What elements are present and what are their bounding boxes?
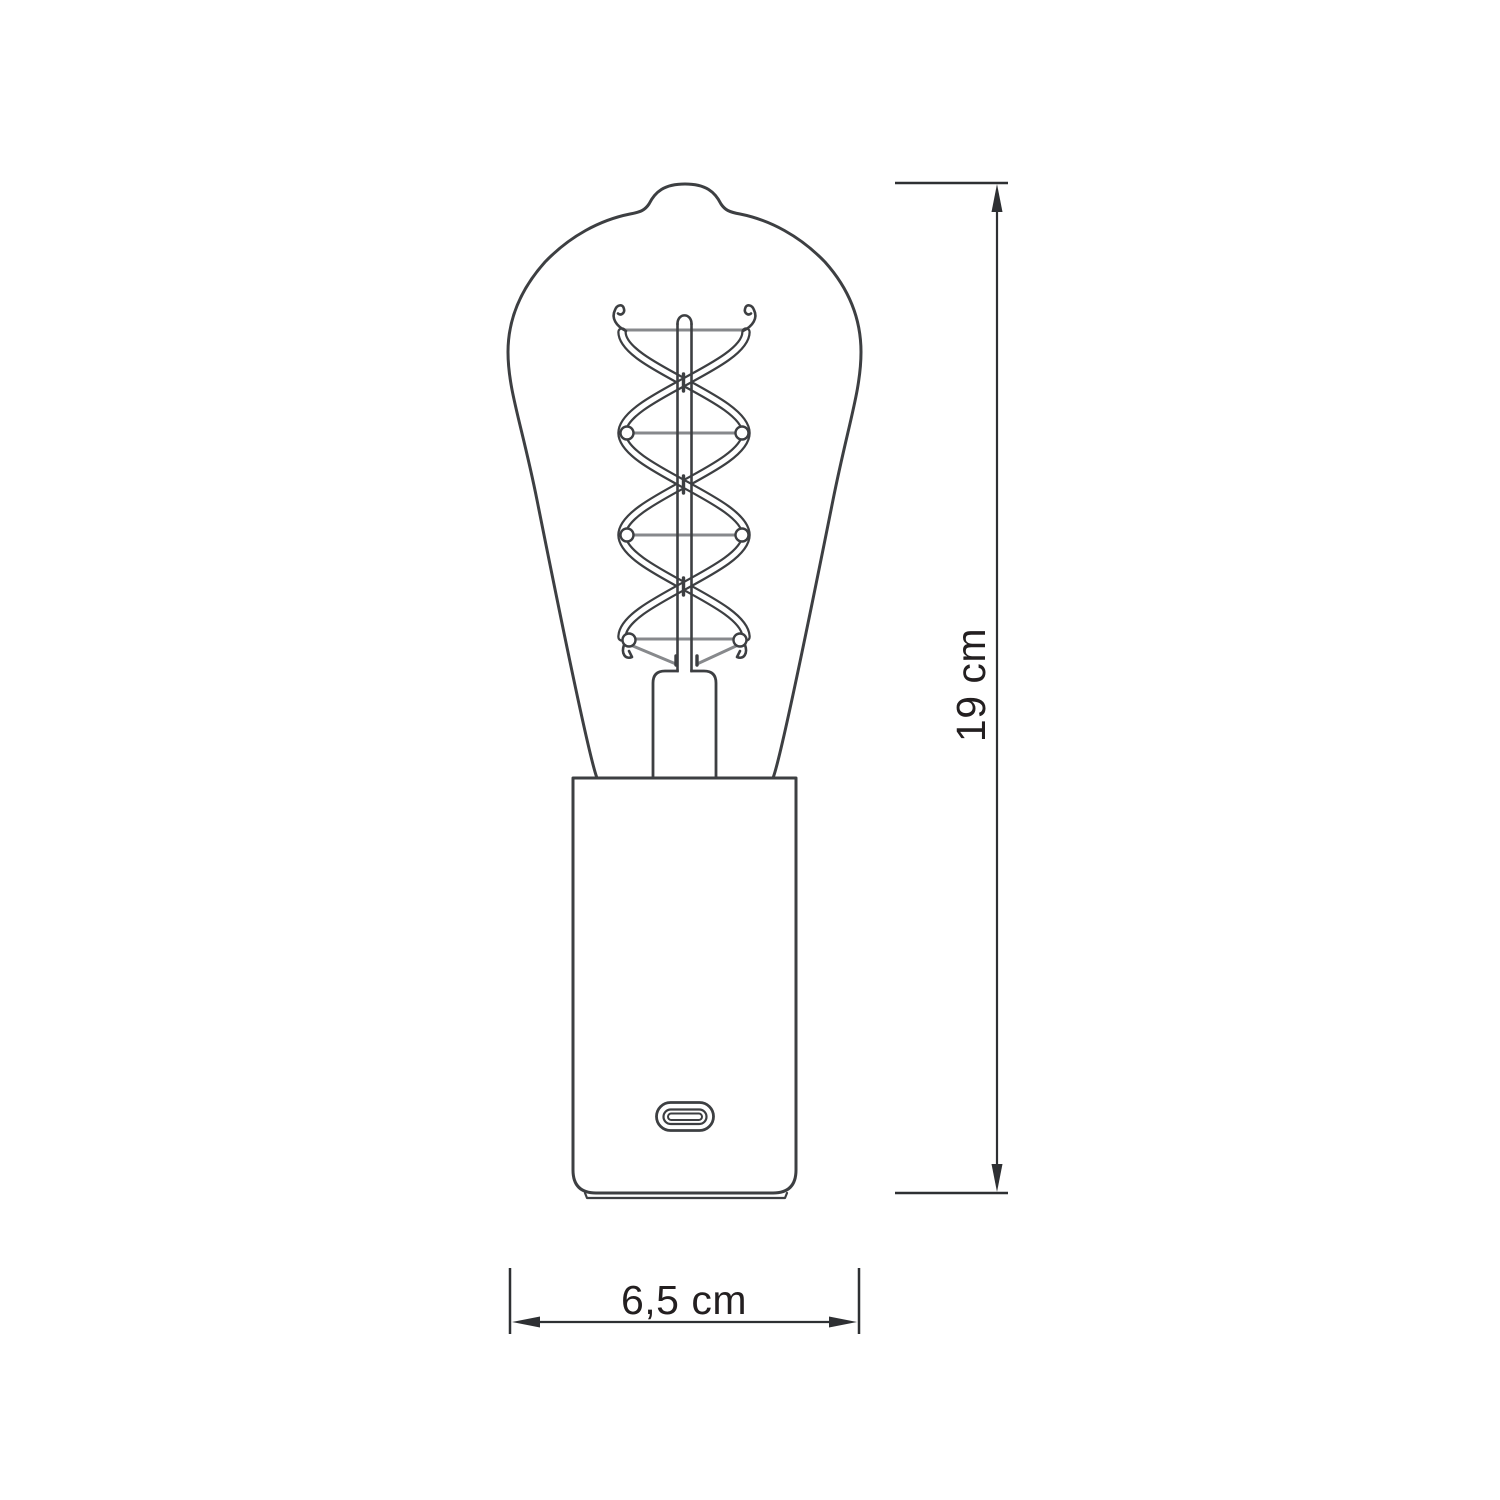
technical-drawing: 19 cm 6,5 cm [0, 0, 1500, 1500]
hook-top-left [614, 305, 626, 331]
stem-rod-cap [678, 315, 692, 324]
loop [621, 529, 634, 542]
arrow-left-icon [512, 1317, 540, 1328]
hook-top-right [743, 305, 755, 331]
loop [621, 427, 634, 440]
height-dimension-label: 19 cm [948, 628, 994, 742]
arrow-down-icon [992, 1164, 1003, 1192]
loop [736, 529, 749, 542]
lead-wire-left [633, 646, 676, 664]
arrow-up-icon [992, 184, 1003, 212]
width-dimension: 6,5 cm [510, 1268, 859, 1334]
filament-anchors [676, 374, 697, 665]
rod-stem-junction [679, 665, 690, 675]
width-dimension-label: 6,5 cm [621, 1277, 747, 1323]
loop [736, 427, 749, 440]
glass-stem-mount [653, 671, 716, 779]
height-dimension: 19 cm [895, 183, 1008, 1193]
lead-wire-right [697, 646, 736, 664]
arrow-right-icon [829, 1317, 857, 1328]
lamp-drawing [508, 184, 861, 1198]
